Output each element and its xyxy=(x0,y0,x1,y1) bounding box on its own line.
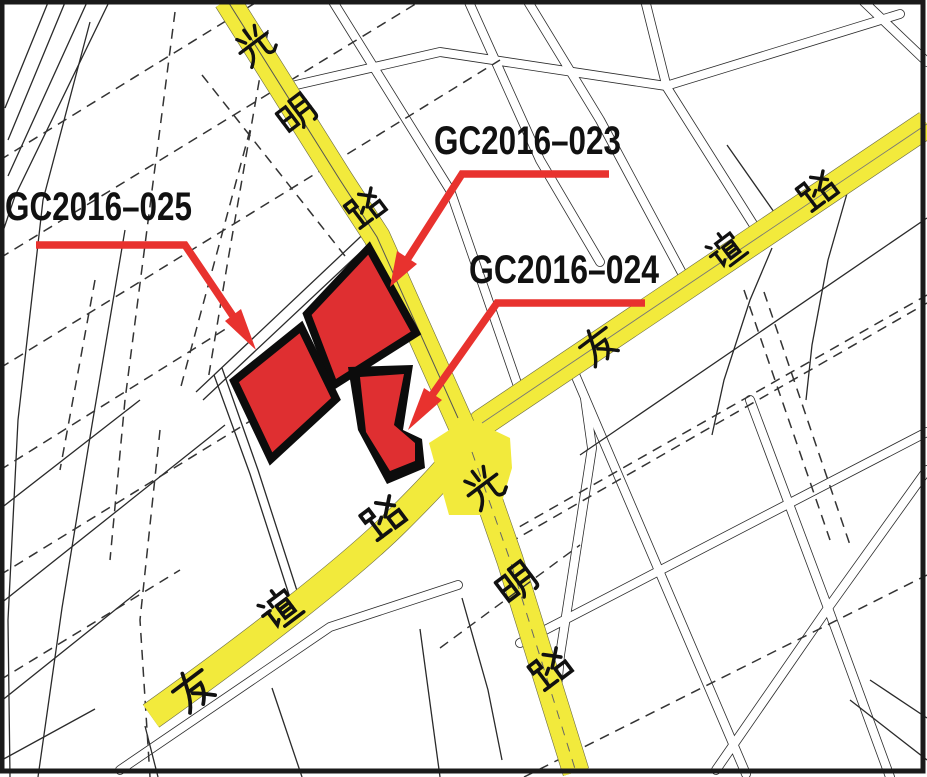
svg-text:GC2016–024: GC2016–024 xyxy=(469,248,660,292)
svg-text:GC2016–025: GC2016–025 xyxy=(5,185,192,229)
svg-text:GC2016–023: GC2016–023 xyxy=(434,119,621,163)
